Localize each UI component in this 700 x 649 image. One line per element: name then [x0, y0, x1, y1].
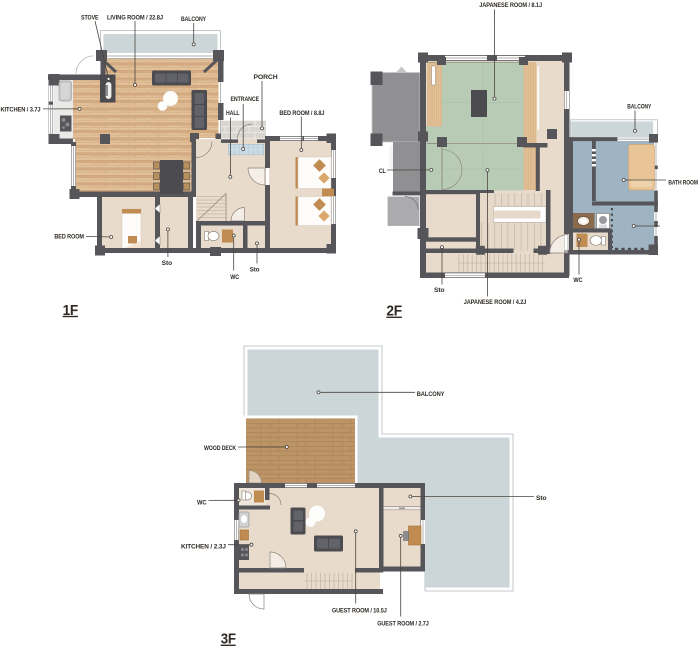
svg-text:BALCONY: BALCONY [417, 391, 446, 398]
svg-text:HALL: HALL [226, 110, 240, 117]
svg-text:PORCH: PORCH [254, 74, 279, 81]
svg-text:CL: CL [379, 168, 386, 175]
svg-text:BALCONY: BALCONY [181, 16, 207, 23]
svg-text:KITCHEN / 3.7J: KITCHEN / 3.7J [1, 106, 42, 113]
svg-text:GUEST ROOM / 10.5J: GUEST ROOM / 10.5J [332, 608, 387, 615]
svg-text:Sto: Sto [434, 287, 445, 294]
svg-text:Sto: Sto [250, 266, 260, 273]
svg-text:Sto: Sto [536, 495, 547, 502]
svg-text:WC: WC [230, 274, 239, 281]
svg-text:JAPANESE ROOM / 4.2J: JAPANESE ROOM / 4.2J [464, 299, 527, 306]
svg-text:KITCHEN / 2.3J: KITCHEN / 2.3J [181, 543, 226, 550]
svg-text:WOOD DECK: WOOD DECK [204, 445, 237, 452]
svg-text:WC: WC [197, 500, 207, 507]
svg-text:BED ROOM: BED ROOM [54, 234, 84, 241]
svg-text:WC: WC [573, 277, 583, 284]
svg-text:ENTRANCE: ENTRANCE [231, 96, 260, 103]
svg-text:BATH ROOM: BATH ROOM [668, 180, 698, 187]
svg-text:GUEST ROOM / 2.7J: GUEST ROOM / 2.7J [377, 621, 429, 628]
svg-text:STOVE: STOVE [81, 14, 99, 21]
svg-text:LIVING ROOM / 22.8J: LIVING ROOM / 22.8J [107, 14, 164, 21]
svg-text:Sto: Sto [162, 260, 173, 267]
svg-text:JAPANESE ROOM / 8.1J: JAPANESE ROOM / 8.1J [479, 2, 542, 9]
svg-text:BALCONY: BALCONY [627, 104, 652, 111]
svg-text:BED ROOM / 8.8J: BED ROOM / 8.8J [279, 110, 325, 117]
